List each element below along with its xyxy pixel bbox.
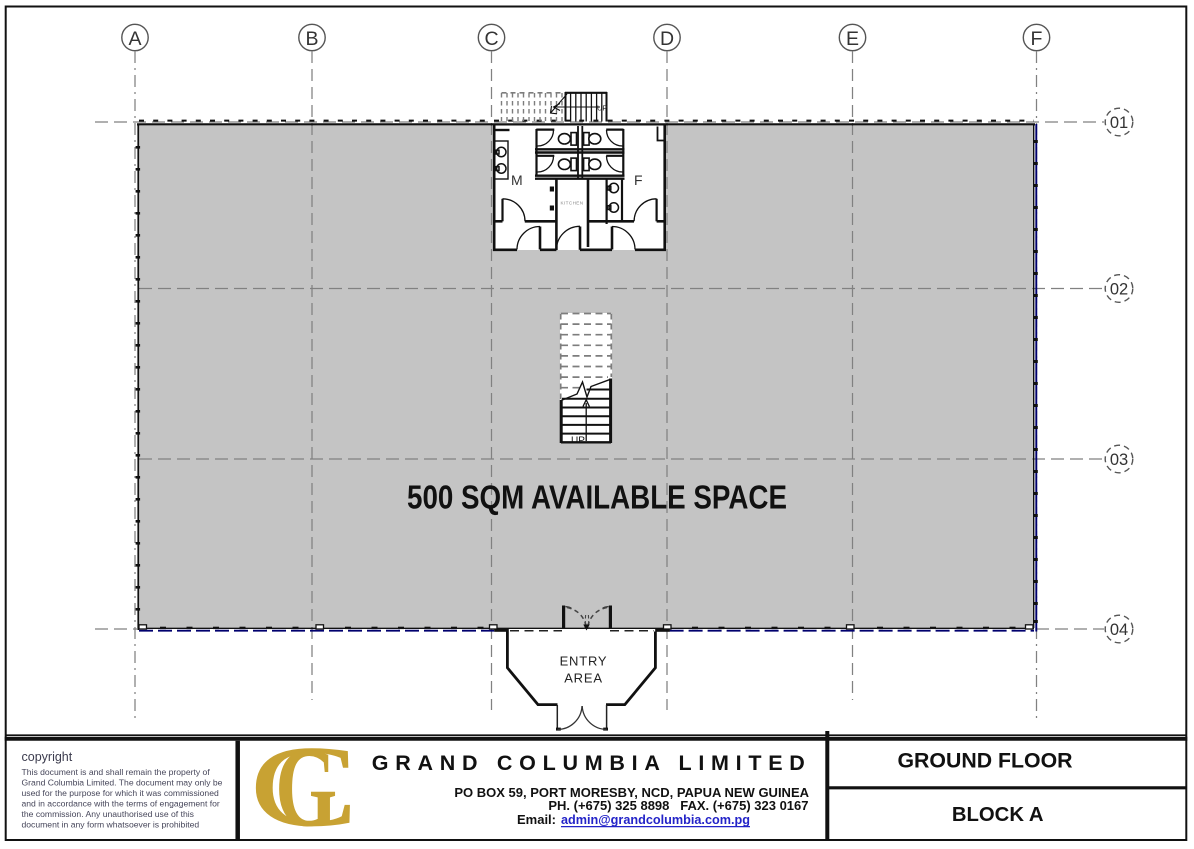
svg-text:F: F bbox=[634, 172, 643, 188]
svg-text:500 SQM AVAILABLE SPACE: 500 SQM AVAILABLE SPACE bbox=[407, 478, 787, 515]
svg-text:copyright: copyright bbox=[22, 750, 73, 764]
svg-text:PH. (+675) 325 8898 FAX. (+6: PH. (+675) 325 8898 FAX. (+675) 323 0167 bbox=[548, 798, 808, 813]
svg-text:C: C bbox=[484, 28, 498, 50]
svg-text:and in accordance with the ter: and in accordance with the terms of enga… bbox=[22, 799, 220, 809]
svg-text:B: B bbox=[305, 28, 318, 50]
svg-text:04: 04 bbox=[1110, 621, 1128, 639]
svg-text:document in any form whatsoeve: document in any form whatsoever is prohi… bbox=[22, 820, 200, 830]
svg-text:GROUND FLOOR: GROUND FLOOR bbox=[897, 749, 1072, 773]
svg-text:This document is and shall rem: This document is and shall remain the pr… bbox=[22, 767, 211, 777]
svg-text:M: M bbox=[511, 172, 523, 188]
svg-text:G: G bbox=[275, 726, 337, 849]
svg-text:GRAND COLUMBIA LIMITED: GRAND COLUMBIA LIMITED bbox=[372, 751, 805, 775]
svg-text:Email:: Email: bbox=[517, 812, 556, 827]
svg-text:used for the purpose for which: used for the purpose for which it was co… bbox=[22, 788, 219, 798]
svg-text:03: 03 bbox=[1110, 451, 1128, 469]
svg-text:BLOCK A: BLOCK A bbox=[952, 804, 1044, 826]
svg-text:F: F bbox=[1031, 28, 1043, 50]
svg-text:E: E bbox=[846, 28, 859, 50]
svg-text:Grand Columbia Limited. The do: Grand Columbia Limited. The document may… bbox=[22, 778, 223, 788]
svg-text:UP: UP bbox=[571, 436, 585, 447]
svg-text:A: A bbox=[128, 28, 141, 50]
svg-text:ENTRY: ENTRY bbox=[560, 654, 608, 669]
svg-text:AREA: AREA bbox=[564, 671, 603, 686]
svg-text:admin@grandcolumbia.com.pg: admin@grandcolumbia.com.pg bbox=[561, 812, 750, 827]
svg-text:D: D bbox=[660, 28, 674, 50]
svg-text:01: 01 bbox=[1110, 114, 1128, 132]
svg-text:KITCHEN: KITCHEN bbox=[561, 201, 584, 206]
svg-text:02: 02 bbox=[1110, 281, 1128, 299]
svg-text:the commission. Any unauthoris: the commission. Any unauthorised use of … bbox=[22, 809, 194, 819]
svg-text:UP: UP bbox=[597, 104, 607, 113]
